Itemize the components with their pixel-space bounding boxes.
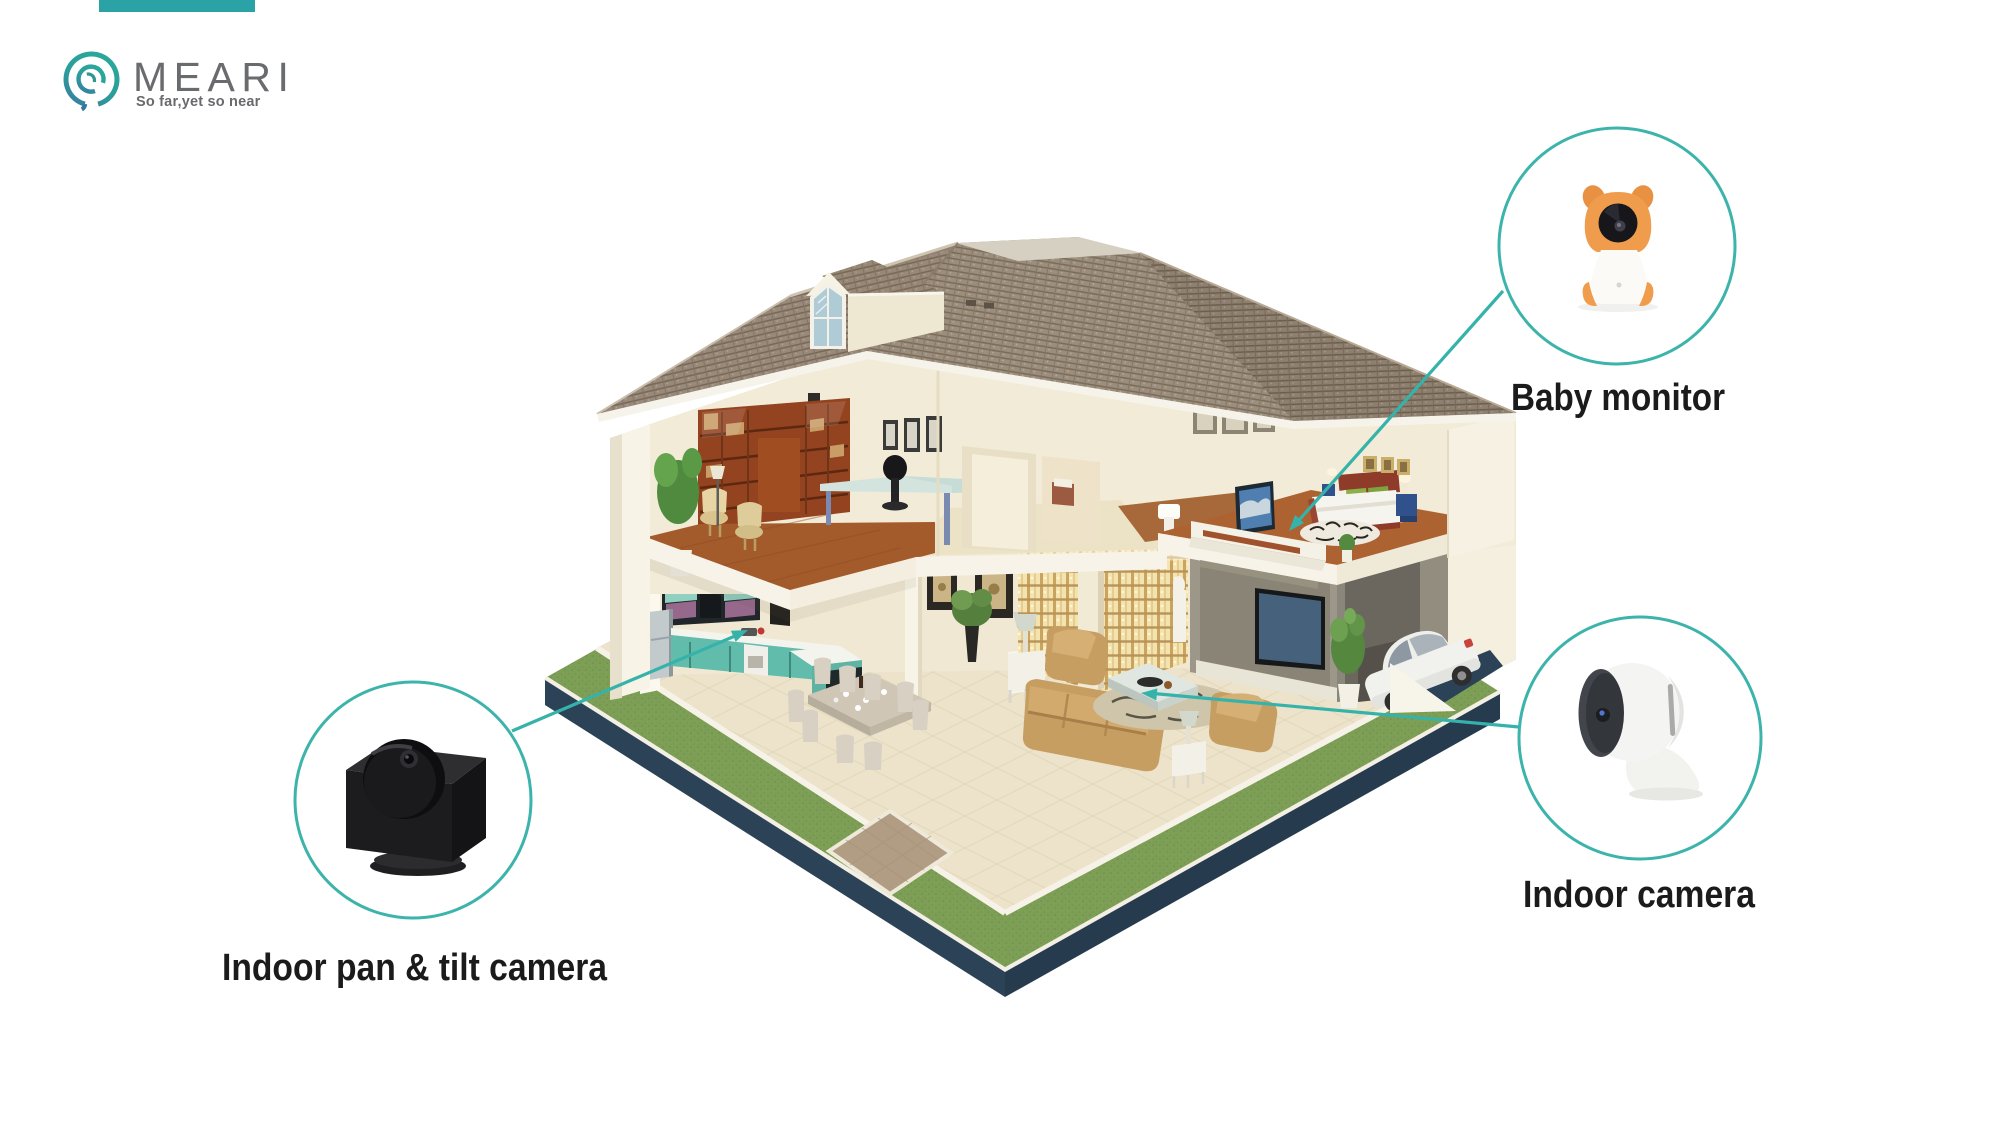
svg-text:Baby monitor: Baby monitor <box>1511 377 1725 419</box>
svg-text:Indoor pan & tilt camera: Indoor pan & tilt camera <box>222 947 608 989</box>
svg-text:So far,yet so near: So far,yet so near <box>136 94 261 110</box>
svg-text:Indoor camera: Indoor camera <box>1523 874 1756 916</box>
